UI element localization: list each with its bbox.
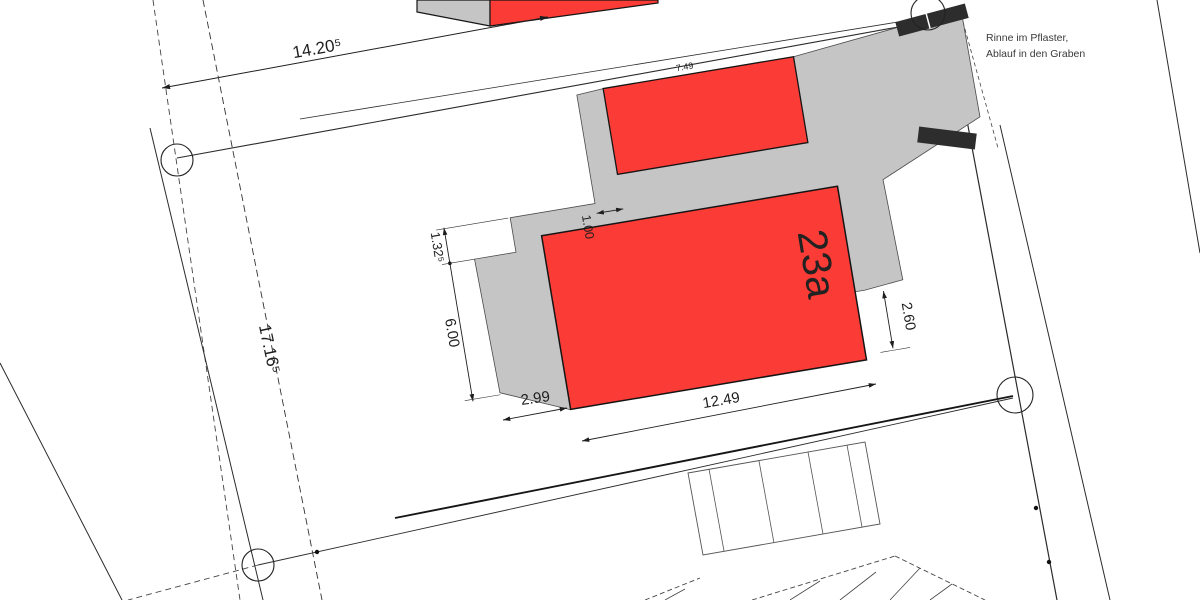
dim-building-length-label: 12.49 (701, 389, 741, 412)
dim-plot-left-label: 17.16⁵ (255, 323, 284, 375)
boundary-dashed-tail (128, 565, 258, 600)
dim-right-offset-line (883, 291, 893, 348)
boundary-point-dot (1047, 560, 1051, 564)
neighbour-building (490, 0, 658, 26)
road-edge-line-bottom-left (0, 363, 122, 600)
dim-plot-top-line (162, 17, 548, 88)
hatch-line (930, 584, 952, 600)
drain-note-line2: Ablauf in den Graben (986, 48, 1085, 60)
dim-garage-width-label: 7.49 (675, 60, 694, 73)
hatch-line (840, 572, 876, 600)
boundary-point-dot (315, 550, 319, 554)
dim-right-offset-label: 2.60 (898, 301, 918, 331)
parking-stalls (688, 442, 880, 555)
dim-bottom-left-label: 2.99 (520, 388, 551, 409)
dim-bottom-left-line (503, 408, 567, 420)
dim-step-label: 1.32⁵ (428, 231, 448, 264)
stall-divider-line (709, 469, 724, 551)
survey-point-circle (997, 377, 1033, 413)
site-plan-page: 23a 7.49 1.32⁵ 6.00 1.00 2.60 (0, 0, 1200, 600)
dim-left-edge-label: 6.00 (441, 317, 463, 349)
site-plan-drawing: 23a 7.49 1.32⁵ 6.00 1.00 2.60 (0, 0, 1200, 600)
dim-extension-tick (880, 347, 910, 352)
stall-divider-line (759, 461, 774, 543)
drain-note-line1: Rinne im Pflaster, (986, 32, 1068, 44)
hatch-line (890, 568, 920, 600)
boundary-line-bottom (258, 398, 1013, 565)
stall-divider-line (808, 452, 823, 534)
dim-extension-tick (436, 218, 508, 230)
stall-divider-line (847, 445, 862, 527)
boundary-point-dot (1034, 506, 1038, 510)
boundary-dashed-line-left (153, 0, 240, 600)
hatch-line (790, 581, 820, 600)
fence-line-bottom (395, 396, 1013, 518)
road-edge-line-right (1157, 0, 1200, 253)
survey-point-circle (161, 144, 193, 176)
dim-chain-left-line (444, 228, 473, 402)
dim-extension-tick (465, 395, 501, 401)
dim-plot-top-label: 14.20⁵ (291, 35, 343, 62)
neighbour-pavement (417, 0, 490, 26)
dim-plot-left-line (203, 0, 322, 600)
ditch-line-right-outer (1000, 125, 1110, 600)
boundary-line-left (150, 128, 263, 600)
hatched-area (645, 556, 985, 600)
